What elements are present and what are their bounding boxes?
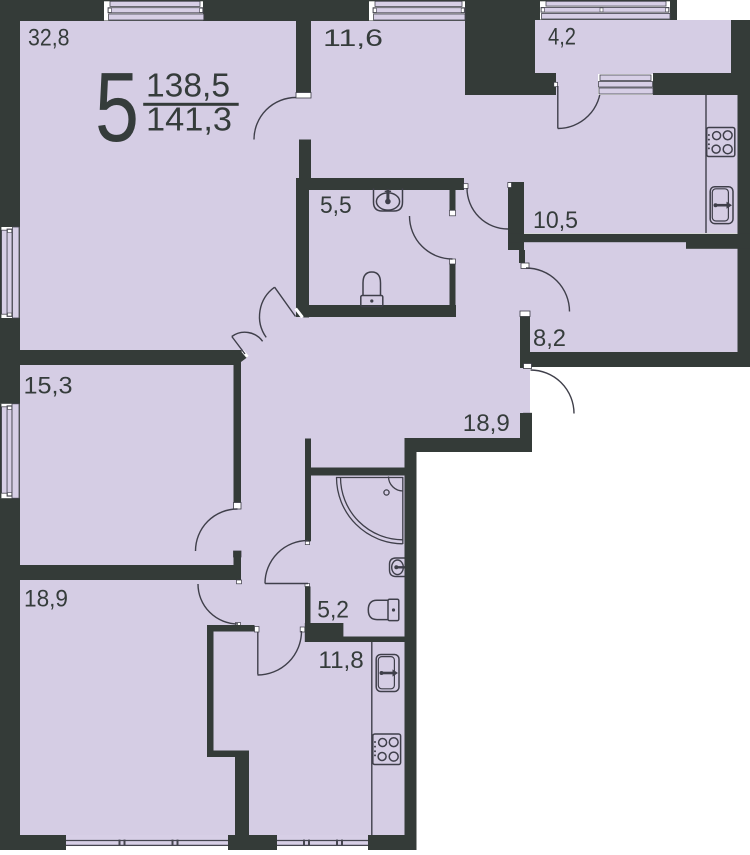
svg-text:5,5: 5,5 (320, 192, 352, 219)
svg-text:11,8: 11,8 (318, 647, 363, 674)
svg-text:5,2: 5,2 (317, 597, 349, 624)
svg-text:8,2: 8,2 (533, 325, 566, 352)
svg-text:11,6: 11,6 (323, 25, 383, 52)
svg-text:18,9: 18,9 (463, 410, 510, 437)
svg-text:32,8: 32,8 (28, 25, 70, 52)
svg-text:15,3: 15,3 (24, 372, 73, 399)
svg-text:5: 5 (95, 52, 139, 162)
svg-text:141,3: 141,3 (146, 101, 232, 138)
svg-text:4,2: 4,2 (548, 24, 576, 51)
svg-text:18,9: 18,9 (24, 586, 68, 613)
svg-text:138,5: 138,5 (146, 67, 230, 104)
svg-text:10,5: 10,5 (533, 207, 578, 234)
